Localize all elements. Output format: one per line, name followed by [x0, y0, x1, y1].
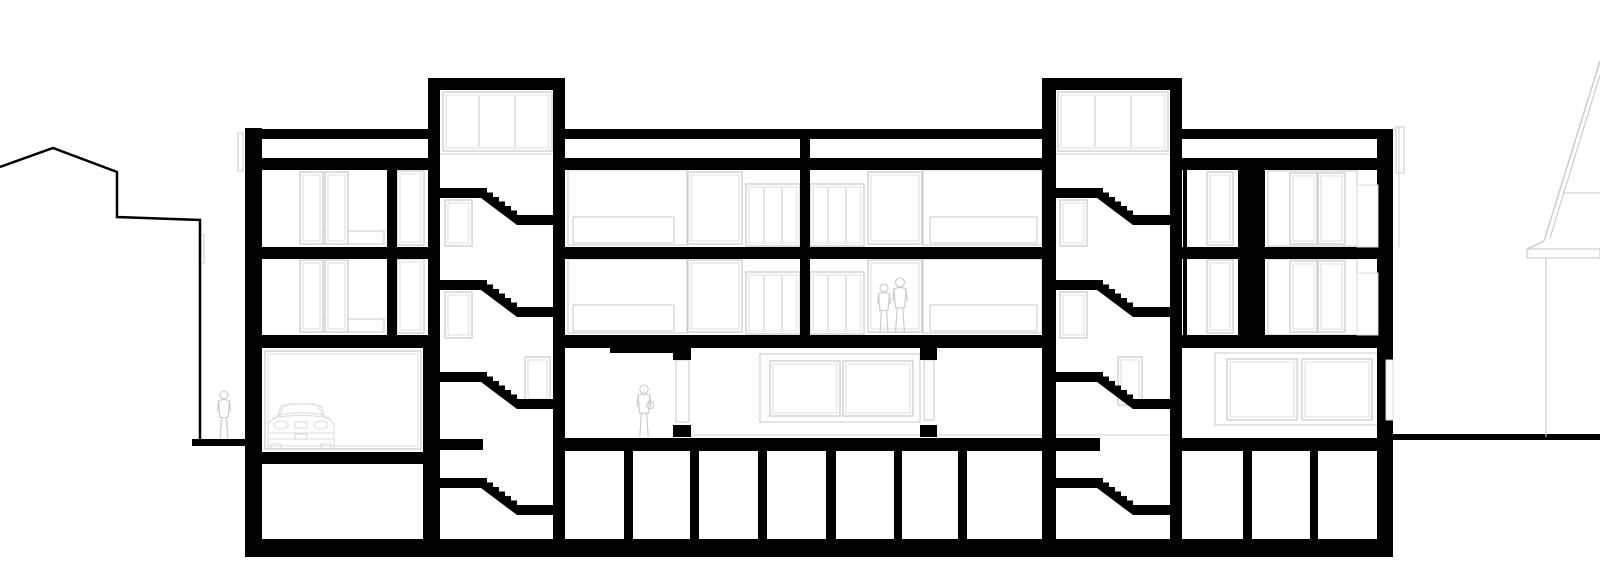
cut-wall [1170, 78, 1182, 556]
stair-steps [481, 280, 517, 317]
stair-steps [481, 478, 517, 515]
cut-slab [565, 247, 1042, 259]
window-frame [1318, 173, 1345, 244]
elevation-outline [676, 360, 689, 422]
cut-wall [1238, 259, 1265, 335]
cut-wall [826, 451, 836, 539]
cut-slab [1182, 129, 1390, 139]
cut-slab [440, 439, 483, 450]
cut-slab [1056, 438, 1100, 451]
stair-landing-right [517, 215, 554, 225]
window-frame [265, 351, 421, 449]
stair-landing-right [1133, 215, 1170, 225]
stair-landing-left [440, 280, 481, 290]
cut-slab [1182, 438, 1393, 451]
cut-wall [920, 425, 937, 437]
stair-landing-left [1056, 372, 1097, 382]
stair-landing-right [1133, 307, 1170, 317]
cut-slab [1182, 158, 1393, 170]
cut-wall [1243, 451, 1252, 539]
stair-landing-left [440, 478, 481, 488]
mullioned-window-frame [810, 272, 864, 334]
window-frame [843, 361, 913, 416]
stair-flight [1056, 372, 1170, 409]
elevation-outline [238, 133, 243, 171]
window-frame [688, 260, 742, 332]
cut-slab [565, 438, 1042, 451]
window-frame [1207, 260, 1233, 333]
cut-wall [1183, 259, 1187, 335]
stair-landing-left [1056, 478, 1097, 488]
person-head [640, 385, 648, 393]
cut-slab [1042, 78, 1182, 90]
stair-landing-right [517, 399, 554, 409]
cut-slab [1182, 335, 1393, 348]
stair-landing-left [440, 372, 481, 382]
window-frame [688, 172, 742, 244]
window-frame [397, 171, 424, 245]
person-head [220, 391, 228, 399]
window-frame [525, 357, 550, 402]
cut-wall [1238, 170, 1265, 247]
cut-wall [1183, 170, 1187, 247]
stair-landing-right [517, 505, 554, 515]
ground-band-left [192, 439, 248, 446]
person-legs [220, 418, 228, 441]
elevation-outline [568, 170, 687, 245]
stair-steps [481, 188, 517, 225]
wall-window-notch [1357, 273, 1378, 335]
cut-slab [565, 129, 1042, 139]
cut-wall [894, 451, 902, 539]
cut-wall [758, 451, 767, 539]
stair-landing-right [517, 307, 554, 317]
stair-landing-right [1133, 505, 1170, 515]
elevation-outline [1396, 127, 1404, 173]
window-frame [1302, 359, 1372, 420]
stair-landing-left [440, 188, 481, 198]
window-frame [397, 259, 424, 333]
stair-steps [1097, 188, 1133, 225]
person-torso [219, 400, 230, 418]
building-section-drawing [0, 0, 1600, 567]
cut-wall [624, 451, 633, 539]
neighbor-roof-slope [1527, 61, 1600, 249]
cut-wall [958, 451, 967, 539]
window-frame [1290, 261, 1317, 332]
right-neighbor-building-outline [1527, 61, 1600, 437]
window-frame [445, 292, 472, 338]
cut-slab [610, 348, 678, 353]
window-frame [1290, 173, 1317, 244]
mullioned-window-frame [443, 92, 552, 151]
elevation-outline [924, 360, 934, 420]
cut-slab [1182, 247, 1393, 259]
window-frame [770, 361, 840, 416]
cut-wall [673, 425, 691, 437]
ground-band-right [1390, 434, 1600, 440]
window-frame [1060, 292, 1087, 338]
stair-steps [1097, 478, 1133, 515]
cut-slab [245, 452, 440, 464]
elevation-outline [923, 170, 1042, 245]
stair-flight [1056, 478, 1170, 515]
window-frame [1060, 200, 1087, 246]
elevation-outline [930, 217, 1037, 243]
mullioned-window-frame [810, 184, 864, 246]
cut-slab [245, 129, 428, 139]
left-neighbor-building-outline [0, 148, 200, 440]
cut-slab [245, 158, 428, 170]
elevation-outline [573, 305, 674, 331]
cut-slab [565, 158, 1042, 170]
window-frame [1207, 172, 1233, 245]
person-legs [640, 413, 648, 437]
person-figure [218, 391, 231, 440]
neighbor-eave [1527, 249, 1600, 258]
elevation-outline [568, 259, 687, 333]
cut-slab [245, 539, 1393, 557]
window-frame [1318, 261, 1345, 332]
cut-wall [920, 348, 937, 360]
wall-window-notch [1386, 360, 1393, 420]
person-figure [637, 385, 654, 437]
cut-slab [245, 335, 428, 348]
mullioned-window-frame [746, 184, 800, 246]
cut-wall [690, 451, 699, 539]
neighbor-roof-inner-slope [1550, 75, 1600, 238]
mullioned-window-frame [1058, 92, 1168, 151]
architectural-section-page [0, 0, 1600, 567]
wall-window-notch [1357, 185, 1378, 247]
window-frame [445, 200, 472, 246]
person-torso [638, 394, 650, 413]
stair-steps [1097, 280, 1133, 317]
cut-wall [553, 78, 565, 556]
stair-landing-left [1056, 280, 1097, 290]
mullioned-window-frame [746, 272, 800, 334]
elevation-outline [573, 217, 674, 243]
stair-steps [481, 372, 517, 409]
cut-slab [565, 335, 1042, 348]
cut-wall [1310, 451, 1318, 539]
cut-slab [428, 78, 565, 90]
stair-flight [440, 478, 554, 515]
cut-slab [245, 247, 428, 259]
cut-wall [428, 78, 440, 348]
stair-landing-right [1133, 399, 1170, 409]
window-frame [1227, 359, 1297, 420]
elevation-outline [930, 305, 1037, 331]
stair-landing-left [1056, 188, 1097, 198]
window-frame [868, 172, 922, 244]
elevation-outline [923, 259, 1042, 333]
cut-wall [1042, 78, 1056, 556]
